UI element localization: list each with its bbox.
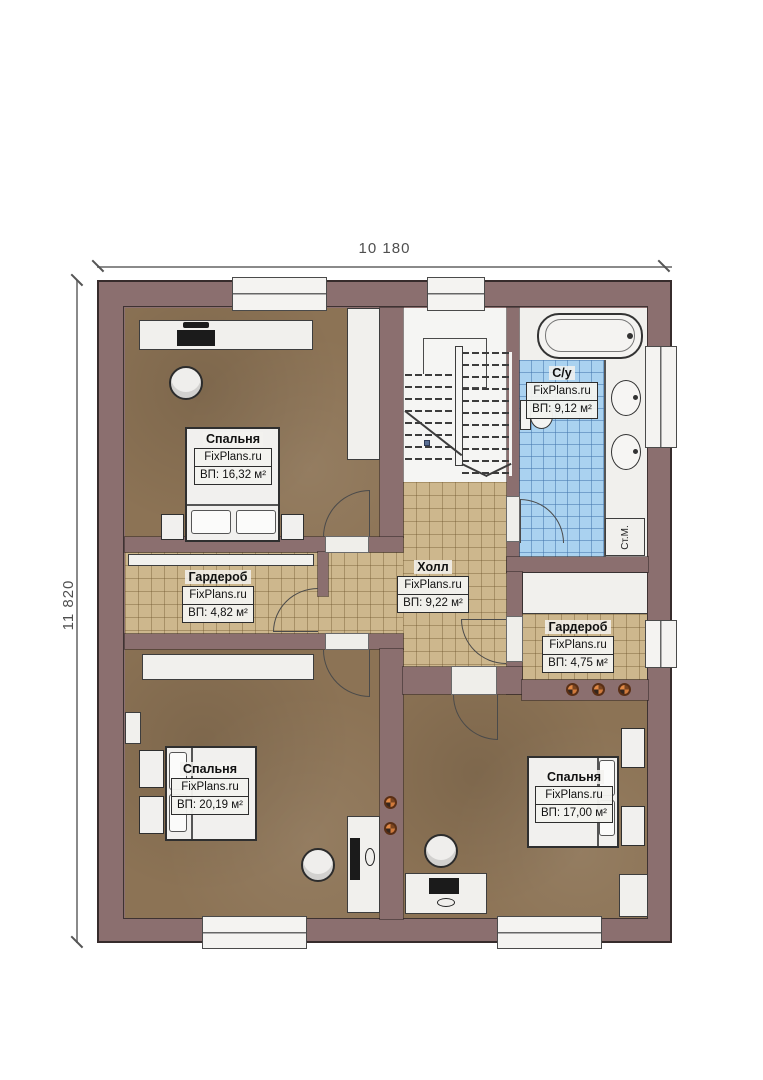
faucet-icon <box>633 395 638 400</box>
bathtub <box>537 313 643 359</box>
pillow <box>236 510 276 534</box>
room-label-bedroom-bottom-right: Спальня FixPlans.ru ВП: 17,00 м² <box>529 770 619 823</box>
bed-blanket-line <box>187 504 278 506</box>
room-label-wardrobe-right: Гардероб FixPlans.ru ВП: 4,75 м² <box>537 620 619 673</box>
spotlight-icon <box>384 822 397 835</box>
door-opening-wardrobe-right <box>506 616 523 662</box>
room-name: Гардероб <box>545 620 610 634</box>
door-opening-bathroom <box>506 496 520 542</box>
printer-icon <box>183 322 209 328</box>
dimension-width-line <box>97 266 672 268</box>
room-label-hall: Холл FixPlans.ru ВП: 9,22 м² <box>393 560 473 613</box>
dimension-height-line <box>76 280 78 943</box>
sink-1 <box>611 380 641 416</box>
room-brand: FixPlans.ru <box>527 383 597 400</box>
nightstand <box>281 514 304 540</box>
window-right-bathroom <box>645 346 677 448</box>
office-chair <box>169 366 203 400</box>
room-name: Холл <box>414 560 451 574</box>
room-label-bedroom-bottom-left: Спальня FixPlans.ru ВП: 20,19 м² <box>155 762 265 815</box>
closet-bottom-left <box>142 654 314 680</box>
room-name: Спальня <box>180 762 240 776</box>
floor-plan-page: 10 180 11 820 <box>0 0 763 1080</box>
room-brand: FixPlans.ru <box>183 587 253 604</box>
staircase-stringer <box>455 346 463 466</box>
window-top-middle <box>427 277 485 311</box>
wall-bathroom-bottom <box>507 557 648 572</box>
wardrobe-left-shelf <box>128 554 314 566</box>
spotlight-icon <box>592 683 605 696</box>
nightstand <box>161 514 184 540</box>
room-area: ВП: 20,19 м² <box>172 796 248 814</box>
faucet-icon <box>633 449 638 454</box>
computer-icon <box>350 838 360 880</box>
room-label-bathroom: С/у FixPlans.ru ВП: 9,12 м² <box>525 366 599 419</box>
room-brand: FixPlans.ru <box>536 787 612 804</box>
staircase-newel-marker <box>424 440 430 446</box>
spotlight-icon <box>618 683 631 696</box>
bathtub-basin <box>545 319 635 352</box>
mouse-icon <box>365 848 375 866</box>
staircase-treads-right <box>462 352 512 476</box>
floor-plan: Ст.М. <box>97 280 672 943</box>
window-bottom-left <box>202 916 307 949</box>
room-brand: FixPlans.ru <box>543 637 613 654</box>
radiator <box>125 712 141 744</box>
room-area: ВП: 9,22 м² <box>398 594 468 612</box>
room-name: С/у <box>549 366 574 380</box>
printer-icon <box>177 330 215 346</box>
window-bottom-middle <box>497 916 602 949</box>
room-area: ВП: 9,12 м² <box>527 400 597 418</box>
door-opening-bedroom-bottom-left <box>325 633 369 650</box>
room-label-bedroom-top-left: Спальня FixPlans.ru ВП: 16,32 м² <box>195 432 271 485</box>
office-chair <box>301 848 335 882</box>
wall-center-lower <box>380 649 403 919</box>
window-top-left <box>232 277 327 311</box>
room-name: Гардероб <box>185 570 250 584</box>
spotlight-icon <box>566 683 579 696</box>
window-right-wardrobe <box>645 620 677 668</box>
computer-base-icon <box>437 898 455 907</box>
door-opening-bedroom-top-left <box>325 536 369 553</box>
room-area: ВП: 4,75 м² <box>543 654 613 672</box>
desk-top-left <box>139 320 313 350</box>
spotlight-icon <box>384 796 397 809</box>
cabinet-corner <box>619 874 648 917</box>
room-name: Спальня <box>544 770 604 784</box>
room-area: ВП: 17,00 м² <box>536 804 612 822</box>
room-brand: FixPlans.ru <box>398 577 468 594</box>
office-chair <box>424 834 458 868</box>
room-brand: FixPlans.ru <box>195 449 271 466</box>
sink-2 <box>611 434 641 470</box>
room-brand: FixPlans.ru <box>172 779 248 796</box>
washing-machine-label: Ст.М. <box>620 525 631 550</box>
room-name: Спальня <box>203 432 263 446</box>
computer-icon <box>429 878 459 894</box>
dimension-width-label: 10 180 <box>97 240 672 257</box>
nightstand <box>621 806 645 846</box>
closet-top-left <box>347 308 380 460</box>
faucet-icon <box>627 333 633 339</box>
room-area: ВП: 16,32 м² <box>195 466 271 484</box>
wall-wardrobe-left-stub <box>318 552 328 596</box>
door-opening-bedroom-bottom-right <box>451 666 497 695</box>
wall-center-upper <box>380 308 403 537</box>
room-label-wardrobe-left: Гардероб FixPlans.ru ВП: 4,82 м² <box>177 570 259 623</box>
nightstand <box>621 728 645 768</box>
pillow <box>191 510 231 534</box>
room-area: ВП: 4,82 м² <box>183 604 253 622</box>
washing-machine: Ст.М. <box>605 518 645 556</box>
